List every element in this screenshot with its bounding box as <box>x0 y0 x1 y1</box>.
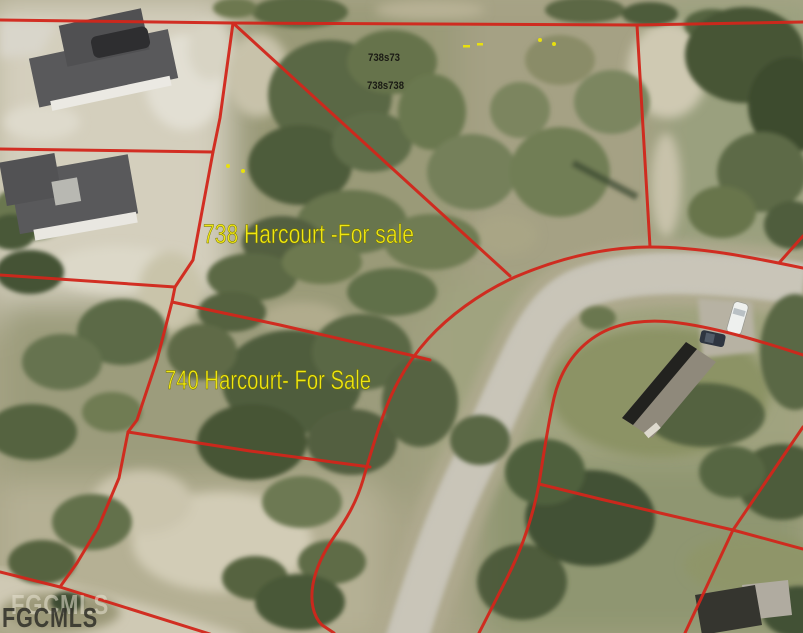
parcel-number-line1: 738s73 <box>368 52 400 64</box>
listing-label-740: 740 Harcourt- For Sale <box>165 365 371 395</box>
mls-watermark: FGCMLS <box>2 602 98 633</box>
parcel-number-line2: 738s738 <box>367 80 404 92</box>
listing-aerial-map: 738s73 738s738 738 Harcourt -For sale 74… <box>0 0 803 633</box>
aerial-photo: 738s73 738s738 738 Harcourt -For sale 74… <box>0 0 803 633</box>
listing-label-738: 738 Harcourt -For sale <box>203 219 414 249</box>
